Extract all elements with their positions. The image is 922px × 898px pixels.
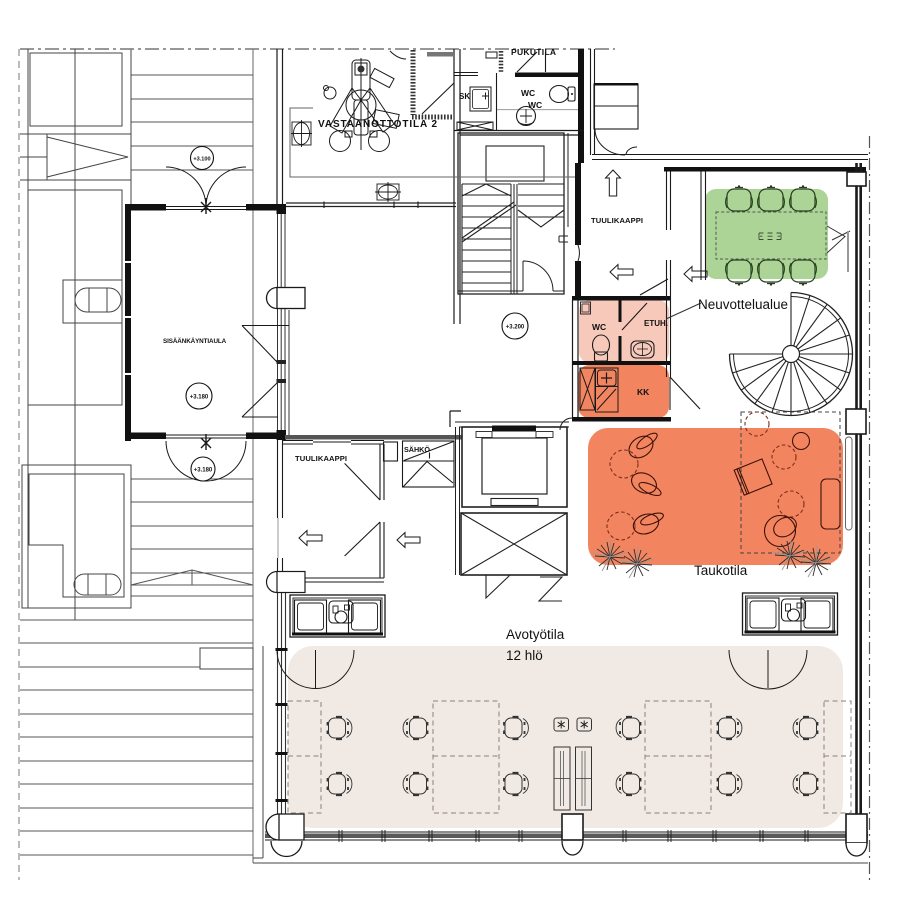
svg-text:PUKUTILA: PUKUTILA [511, 47, 556, 57]
svg-text:Avotyötila: Avotyötila [506, 627, 565, 642]
svg-text:KK: KK [637, 387, 650, 397]
svg-text:WC: WC [592, 322, 606, 332]
svg-text:+3.180: +3.180 [190, 395, 209, 401]
svg-text:WC: WC [521, 88, 535, 98]
svg-text:12 hlö: 12 hlö [506, 648, 543, 663]
svg-text:WC: WC [528, 100, 542, 110]
svg-text:TUULIKAAPPI: TUULIKAAPPI [591, 216, 643, 225]
svg-text:+3.180: +3.180 [194, 468, 213, 474]
svg-text:SÄHKÖ: SÄHKÖ [404, 445, 430, 454]
svg-text:SISÄÄNKÄYNTIAULA: SISÄÄNKÄYNTIAULA [163, 337, 227, 345]
svg-text:Taukotila: Taukotila [694, 563, 748, 578]
svg-text:+3.100: +3.100 [193, 157, 210, 163]
svg-text:+3.200: +3.200 [506, 325, 525, 331]
svg-text:SK: SK [459, 92, 470, 101]
svg-text:VASTAANOTTOTILA 2: VASTAANOTTOTILA 2 [318, 119, 438, 130]
svg-text:ETUH.: ETUH. [644, 319, 668, 328]
svg-text:TUULIKAAPPI: TUULIKAAPPI [295, 454, 347, 463]
svg-text:Neuvottelualue: Neuvottelualue [698, 297, 788, 312]
